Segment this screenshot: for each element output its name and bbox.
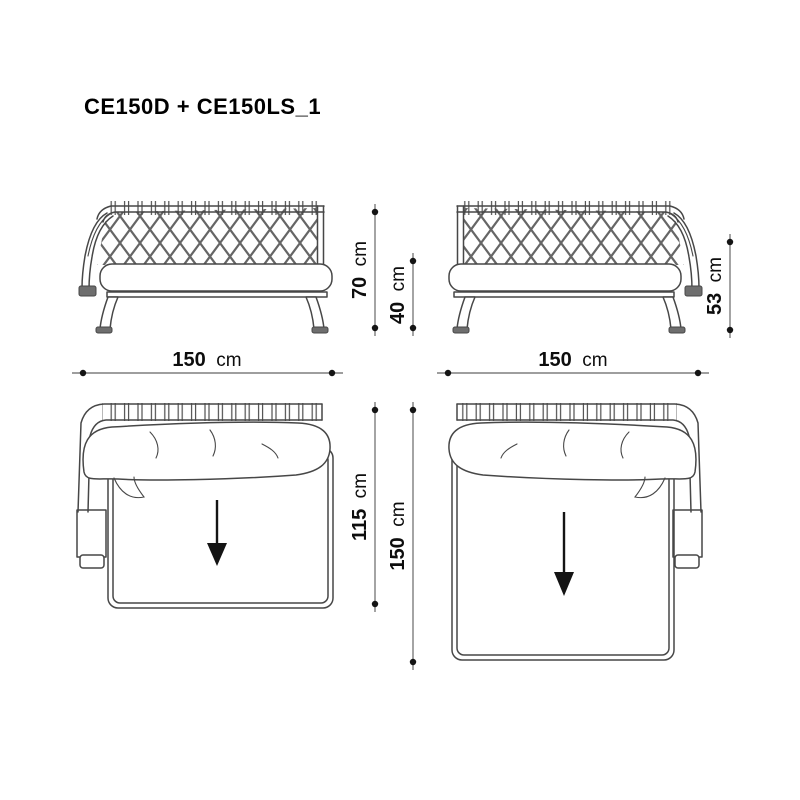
- dim-label: 150 cm: [387, 501, 409, 570]
- dim-unit-text: cm: [350, 473, 371, 498]
- dim-front-right-back-height: 53 cm: [704, 234, 733, 338]
- dim-value: 150: [538, 349, 571, 371]
- dim-value: 70: [349, 277, 371, 299]
- dim-label: 53 cm: [704, 257, 726, 315]
- dim-value: 150: [387, 537, 409, 570]
- dim-label: 150 cm: [538, 349, 607, 371]
- dim-unit-text: cm: [705, 257, 726, 282]
- dim-unit-text: cm: [582, 350, 607, 371]
- dim-unit-text: cm: [388, 501, 409, 526]
- dim-front-right-width: 150 cm: [437, 349, 709, 376]
- dim-label: 40 cm: [387, 266, 409, 324]
- dim-label: 70 cm: [349, 241, 371, 299]
- technical-drawing-page: CE150D + CE150LS_1: [0, 0, 800, 800]
- dim-front-left-seat-height: 40 cm: [387, 253, 416, 336]
- dim-unit-text: cm: [216, 350, 241, 371]
- dim-value: 40: [387, 302, 409, 324]
- dim-label: 115 cm: [349, 473, 371, 541]
- front-view-right: [449, 201, 702, 333]
- dim-value: 115: [349, 509, 371, 541]
- dim-top-left-depth: 115 cm: [349, 402, 378, 612]
- dim-top-right-depth: 150 cm: [387, 402, 416, 670]
- front-view-left: [79, 201, 332, 333]
- dim-unit-text: cm: [350, 241, 371, 266]
- dim-front-left-total-height: 70 cm: [349, 204, 378, 336]
- dim-front-left-width: 150 cm: [72, 349, 343, 376]
- furniture-dimension-drawing: 70 cm 40 cm 53 cm: [0, 0, 800, 800]
- dim-value: 53: [704, 293, 726, 315]
- dim-label: 150 cm: [172, 349, 241, 371]
- dim-value: 150: [172, 349, 205, 371]
- dim-unit-text: cm: [388, 266, 409, 291]
